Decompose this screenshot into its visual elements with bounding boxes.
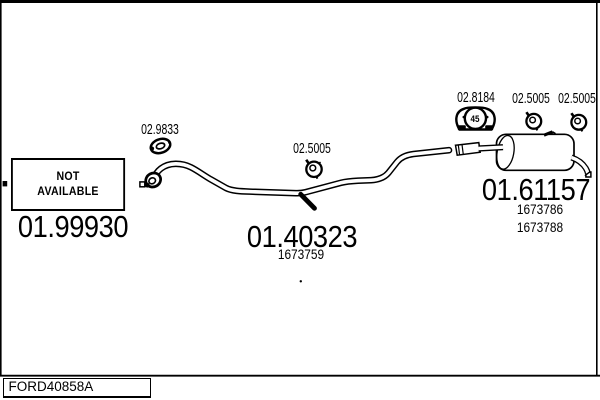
ref-number-rear-silencer-1: 1673786 xyxy=(510,202,570,216)
centre-clamp-icon xyxy=(306,160,321,179)
left-edge-marker-square xyxy=(3,181,8,186)
part-code-front-gasket[interactable]: 02.9833 xyxy=(135,123,185,138)
silencer-body xyxy=(494,132,574,171)
not-available-box: NOT AVAILABLE xyxy=(11,158,125,211)
gasket-icon xyxy=(149,136,172,155)
drawing-code-box: FORD40858A xyxy=(3,378,151,398)
ref-number-rear-silencer-2: 1673788 xyxy=(510,220,570,234)
pipe-hanger-rod xyxy=(301,194,315,208)
rear-clamp-left-icon xyxy=(526,112,541,130)
silencer-inlet-pipe xyxy=(479,147,504,148)
not-available-line1: NOT xyxy=(56,170,79,185)
part-code-rear-clamp-left[interactable]: 02.5005 xyxy=(506,92,556,107)
not-available-line2: AVAILABLE xyxy=(37,185,98,200)
speck-dot xyxy=(300,280,302,282)
part-code-rear-clamp-right[interactable]: 02.5005 xyxy=(551,92,600,107)
part-code-centre-clamp[interactable]: 02.5005 xyxy=(286,142,336,157)
ref-number-centre-pipe: 1673759 xyxy=(271,247,331,261)
part-code-front-section[interactable]: 01.99930 xyxy=(15,211,129,242)
drawing-code: FORD40858A xyxy=(9,379,94,394)
pipe-start-marker-square xyxy=(140,182,145,187)
joint-sleeve xyxy=(456,143,481,156)
exhaust-parts-diagram: NOT AVAILABLE 01.99930 02.9833 02.5005 0… xyxy=(0,0,600,400)
part-code-rear-hanger[interactable]: 02.8184 xyxy=(450,91,500,106)
rear-clamp-right-icon xyxy=(571,113,586,131)
hanger-size-label: 45 xyxy=(469,115,483,125)
